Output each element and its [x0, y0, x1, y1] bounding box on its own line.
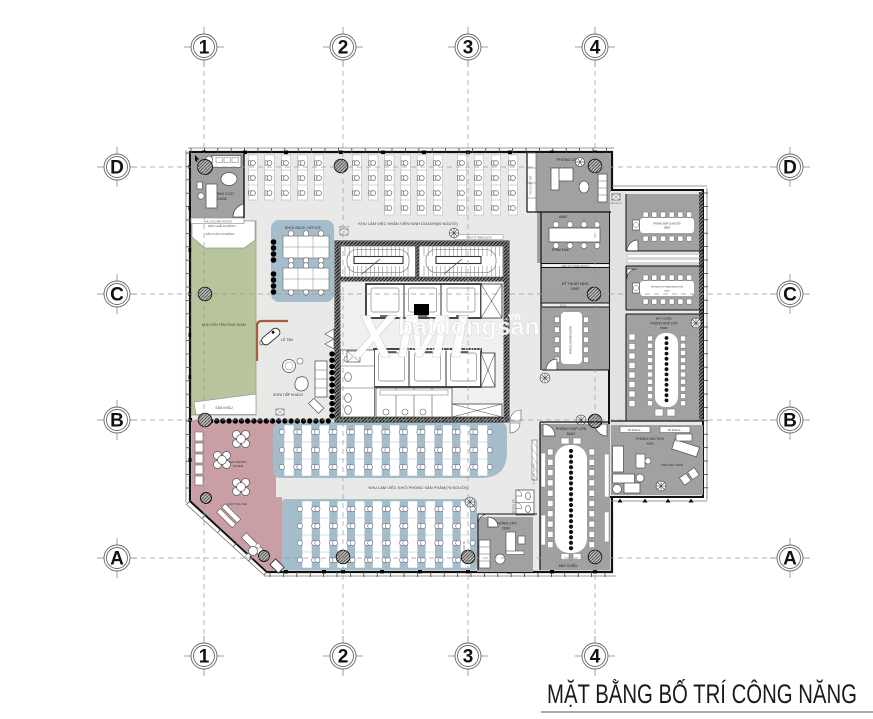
svg-text:TỦ HỒ SƠ LƯU TRỮ: TỦ HỒ SƠ LƯU TRỮ [533, 463, 536, 485]
svg-text:B: B [110, 411, 124, 432]
svg-text:1: 1 [199, 647, 210, 668]
svg-text:54M2: 54M2 [567, 432, 576, 436]
svg-text:SOFA TIẾP KHÁCH: SOFA TIẾP KHÁCH [273, 392, 304, 397]
svg-text:KHU VỰC MÁY PHOTO: KHU VỰC MÁY PHOTO [204, 219, 232, 223]
svg-text:MÁY CHIẾU: MÁY CHIẾU [559, 563, 578, 568]
svg-text:TEAM ENA: TEAM ENA [551, 248, 569, 252]
svg-text:PHÒNG CPO: PHÒNG CPO [495, 521, 517, 526]
svg-text:4: 4 [590, 38, 601, 59]
svg-text:PHÒNG CHỦ TỊCH: PHÒNG CHỦ TỊCH [636, 436, 664, 441]
svg-text:41M2: 41M2 [646, 442, 654, 446]
svg-text:67M2: 67M2 [664, 291, 670, 293]
svg-text:KHU LÀM VIỆC NHÂN VIÊN KINH DO: KHU LÀM VIỆC NHÂN VIÊN KINH DOANH(55 NGƯ… [358, 221, 458, 226]
svg-text:21M2: 21M2 [217, 197, 227, 201]
svg-text:C: C [110, 285, 124, 306]
svg-text:MẶT BẰNG BỐ TRÍ CÔNG NĂNG: MẶT BẰNG BỐ TRÍ CÔNG NĂNG [547, 677, 857, 709]
svg-text:C: C [783, 285, 797, 306]
svg-text:SÂN KHẤU: SÂN KHẤU [215, 406, 233, 410]
svg-text:CẤP NƯỚC: CẤP NƯỚC [610, 202, 622, 205]
svg-text:21M2: 21M2 [502, 527, 511, 531]
svg-text:KỸ THUẬT MKD: KỸ THUẬT MKD [562, 281, 589, 286]
svg-text:KHỐI BACK OFFICE: KHỐI BACK OFFICE [285, 225, 322, 230]
svg-text:D: D [110, 158, 124, 179]
svg-text:KHU HỘI TRƯỜNG 81M2: KHU HỘI TRƯỜNG 81M2 [202, 322, 247, 327]
svg-text:2: 2 [338, 38, 349, 59]
svg-text:KHU LÀM VIỆC KHỐI PHÒNG SẢN PH: KHU LÀM VIỆC KHỐI PHÒNG SẢN PHẨM(76 NGƯỜ… [368, 485, 468, 490]
svg-text:MÁY CHIẾU: MÁY CHIẾU [656, 316, 673, 321]
svg-text:2: 2 [338, 647, 349, 668]
svg-text:by PropertyGuru: by PropertyGuru [408, 343, 481, 354]
svg-text:1: 1 [199, 38, 210, 59]
svg-text:ĂN NHẸ: ĂN NHẸ [233, 464, 244, 468]
svg-text:LỄ TÂN: LỄ TÂN [281, 337, 293, 342]
svg-text:CẤP NƯỚC: CẤP NƯỚC [338, 226, 350, 229]
svg-text:3: 3 [463, 647, 474, 668]
svg-text:28M2: 28M2 [664, 227, 671, 230]
svg-text:CHỖ THƯ GIÃN: CHỖ THƯ GIÃN [661, 462, 683, 467]
svg-text:PHÒNG HỌP 10 NGƯỜI: PHÒNG HỌP 10 NGƯỜI [654, 223, 681, 226]
svg-text:55M2: 55M2 [660, 326, 668, 330]
svg-text:44M2: 44M2 [559, 215, 568, 219]
svg-text:10M2: 10M2 [571, 287, 580, 291]
svg-text:A: A [110, 549, 124, 570]
svg-text:3: 3 [463, 38, 474, 59]
svg-text:SÂN KHẤU DI ĐỘNG: SÂN KHẤU DI ĐỘNG [205, 231, 235, 236]
svg-text:D: D [783, 158, 797, 179]
svg-text:PHÒNG HỌP KHÁCH(6NGƯỜI): PHÒNG HỌP KHÁCH(6NGƯỜI) [651, 286, 683, 289]
svg-text:PHÒNG HỌP LỚN: PHÒNG HỌP LỚN [556, 426, 587, 431]
svg-text:A: A [783, 549, 797, 570]
svg-text:PHÒNG HỌP LỚN: PHÒNG HỌP LỚN [650, 321, 678, 326]
svg-text:.vn: .vn [505, 311, 521, 323]
svg-text:B: B [783, 411, 797, 432]
svg-text:4: 4 [590, 647, 601, 668]
